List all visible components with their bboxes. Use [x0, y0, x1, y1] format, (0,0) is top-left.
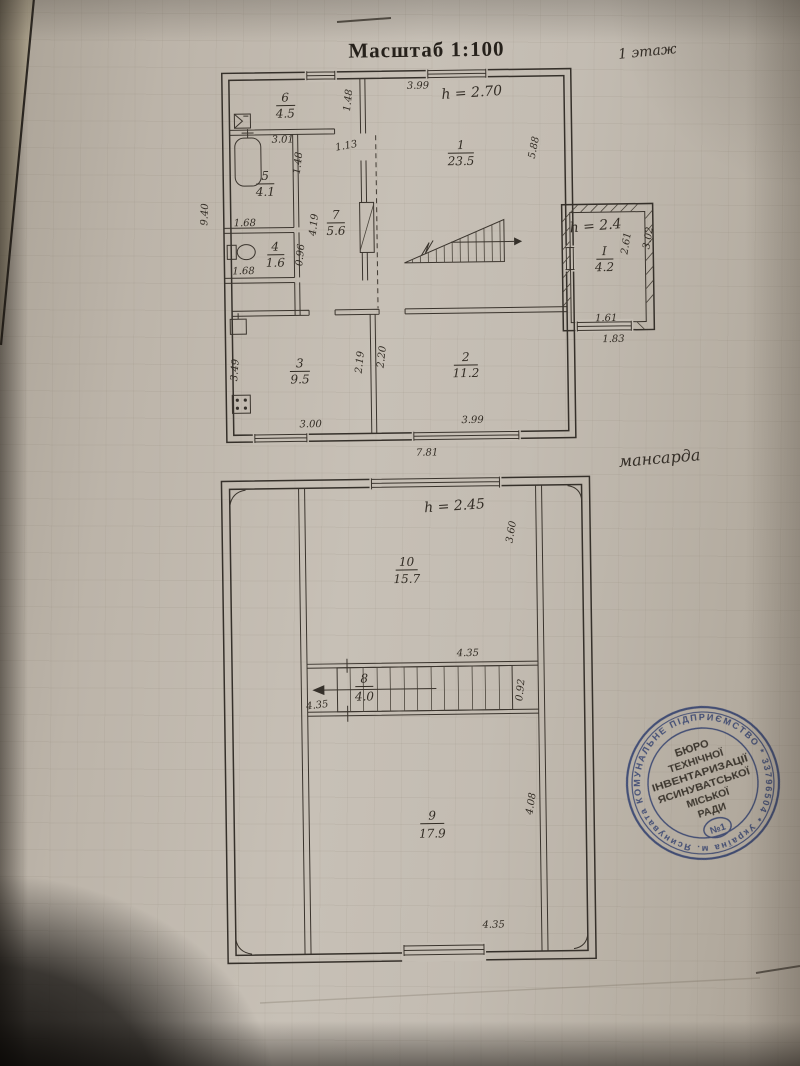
annex-area: 4.2 [594, 260, 614, 274]
mansard-room-labels: 10 15.7 8 4.0 9 17.9 [352, 554, 446, 841]
dim-annex-inner-w: 1.61 [595, 313, 617, 324]
room-4-area: 1.6 [266, 256, 286, 270]
stair-direction-arrow [514, 237, 522, 245]
dim-r9-h: 4.08 [524, 792, 539, 817]
dim-annex-inner-h: 2.61 [619, 232, 634, 257]
room-8-number: 8 [360, 671, 368, 685]
floor1-window-top-2 [426, 68, 488, 81]
room-2-number: 2 [461, 350, 470, 364]
chimney-block [360, 202, 375, 252]
dim-219: 2.19 [354, 350, 368, 375]
bathtub-icon [235, 129, 262, 186]
annex-height-note: h = 2.4 [569, 216, 622, 236]
room-7-area: 5.6 [326, 224, 346, 238]
mansard-stairs-icon [312, 665, 513, 712]
stair-direction-arrow [312, 685, 324, 695]
floor1-stairs-icon [404, 219, 523, 263]
floor1-plan: 6 4.5 5 4.1 4 1.6 7 5.6 1 23.5 3 [197, 65, 659, 461]
mansard-label: мансарда [618, 445, 701, 471]
photo-frame: Масштаб 1:100 1 этаж [0, 0, 800, 1066]
dim-annex-outer-w: 1.83 [602, 334, 624, 345]
floor1-window-top-1 [305, 70, 337, 82]
dim-wc-top: 1.68 [234, 218, 256, 229]
room-10-area: 15.7 [393, 572, 420, 586]
annex-label: I 4.2 [594, 244, 615, 274]
mansard-plan: 10 15.7 8 4.0 9 17.9 h = 2.45 3.60 4.35 … [221, 474, 596, 964]
room-3-area: 9.5 [290, 372, 309, 386]
room-6-number: 6 [281, 91, 289, 105]
room-3-number: 3 [296, 356, 304, 370]
dim-r3-h: 3.49 [229, 358, 242, 382]
floor-plan-drawing: Масштаб 1:100 1 этаж [0, 0, 800, 1066]
mansard-window-bottom [402, 942, 486, 962]
annex-number: I [601, 244, 607, 258]
floor1-room-labels: 6 4.5 5 4.1 4 1.6 7 5.6 1 23.5 3 [253, 88, 479, 387]
dim-left-total: 9.40 [199, 203, 211, 226]
floor1-annex: I 4.2 h = 2.4 2.61 3.02 1.61 1.83 [562, 203, 658, 345]
stamp-center-text: БЮРО ТЕХНІЧНОЇ ІНВЕНТАРИЗАЦІЇ ЯСИНУВАТСЬ… [642, 728, 761, 832]
dim-wc-bottom: 1.68 [232, 266, 254, 277]
room-5-number: 5 [261, 169, 269, 183]
mansard-exterior-wall [221, 476, 596, 963]
room-5-area: 4.1 [255, 185, 275, 199]
room-6-area: 4.5 [275, 106, 295, 120]
room-7-number: 7 [332, 208, 340, 222]
dim-right-side: 5.88 [527, 136, 542, 160]
dim-total-w: 7.81 [416, 447, 438, 458]
gas-stove-icon [232, 395, 250, 413]
room-9-area: 17.9 [419, 826, 446, 840]
room-4-number: 4 [270, 240, 279, 254]
dim-148a: 1.48 [342, 89, 355, 112]
scale-title: Масштаб 1:100 [348, 36, 505, 62]
dim-stair-left: 4.35 [305, 699, 329, 713]
dim-r3-w: 3.00 [299, 419, 322, 430]
stove-icon [234, 114, 250, 128]
room-2-area: 11.2 [452, 366, 479, 380]
floor1-window-bottom-2 [412, 429, 521, 443]
top-dash-mark [337, 18, 391, 22]
dim-r10-w: 4.35 [456, 648, 479, 659]
dim-113: 1.13 [334, 139, 358, 154]
room-1-area: 23.5 [447, 154, 475, 168]
floor1-height-note: h = 2.70 [441, 83, 503, 103]
dim-r10-h: 3.60 [505, 520, 520, 544]
dim-220: 2.20 [375, 345, 389, 370]
dim-r2-w: 3.99 [461, 415, 484, 426]
dim-top-301: 3.01 [271, 134, 293, 145]
floor1-label: 1 этаж [617, 41, 677, 63]
bottom-right-mark [756, 966, 800, 973]
room-8-area: 4.0 [354, 689, 375, 703]
crease-line [260, 978, 760, 1003]
room-9-number: 9 [428, 809, 436, 823]
dim-r9-w: 4.35 [481, 920, 504, 931]
floor1-window-bottom-1 [253, 432, 309, 445]
dim-top-399: 3.99 [407, 81, 430, 92]
dim-wc-side: 0.96 [294, 243, 307, 267]
dim-148b: 1.48 [292, 151, 305, 174]
dim-stair-h: 0.92 [514, 678, 527, 701]
room-1-number: 1 [457, 138, 465, 152]
mansard-height-note: h = 2.45 [424, 496, 486, 516]
mansard-window-top [369, 476, 501, 491]
room-10-number: 10 [399, 555, 415, 569]
dim-419: 4.19 [308, 213, 322, 238]
mansard-interior-walls [299, 485, 548, 954]
